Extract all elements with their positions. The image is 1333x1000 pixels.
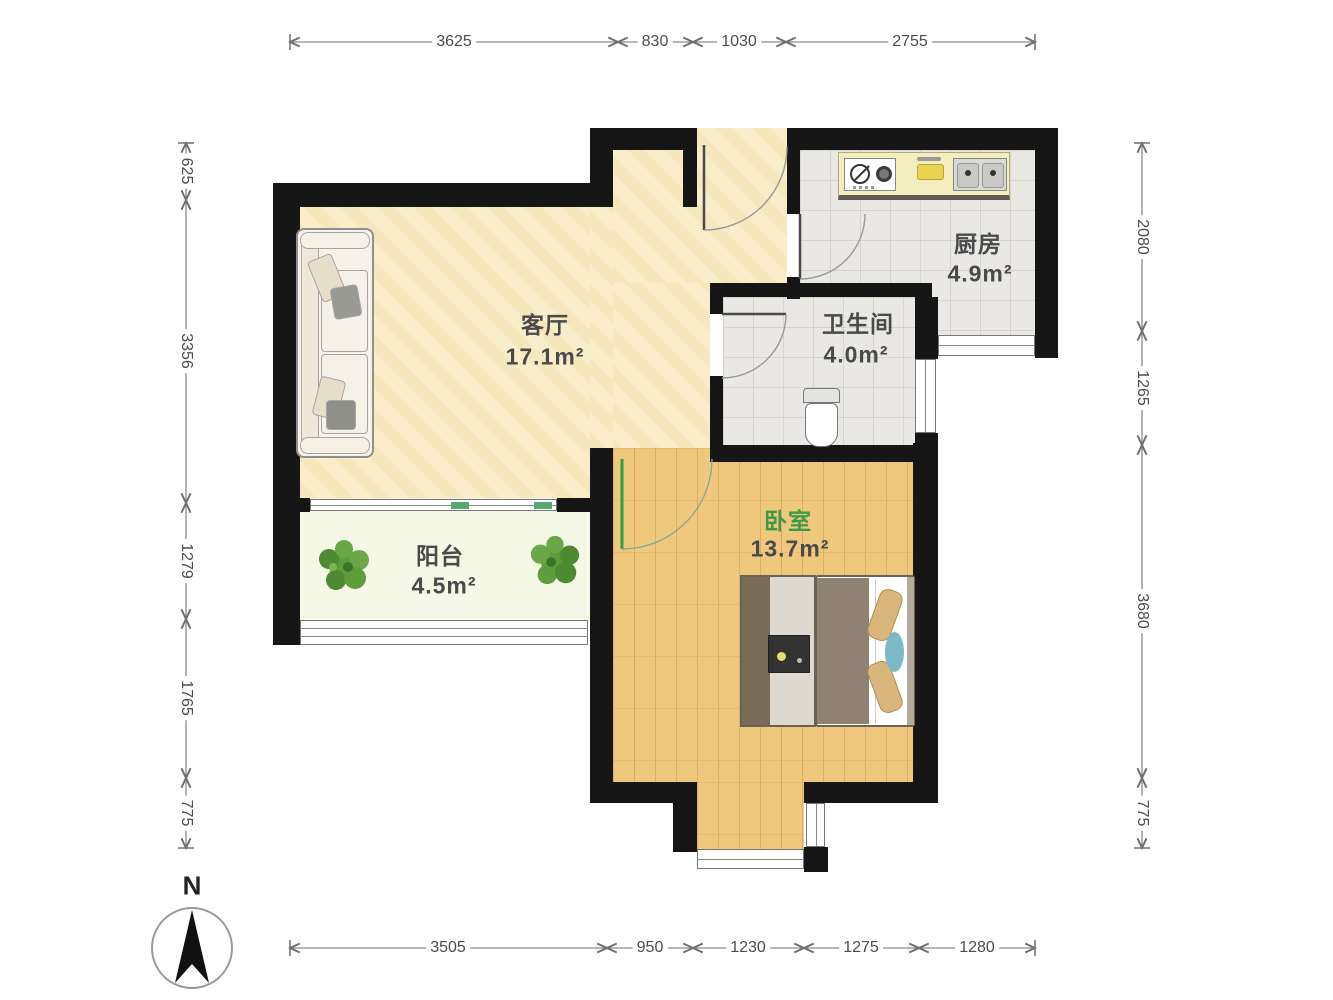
- kitchen-label: 厨房: [954, 225, 1002, 259]
- bed-duvet: [817, 578, 869, 724]
- floor-plan: 3625 830 1030 2755 625 3356 1279 1765 77…: [0, 0, 1333, 1000]
- living-room-label: 客厅: [521, 306, 569, 340]
- bathroom-area: 4.0m²: [823, 342, 888, 369]
- bed-headboard: [907, 577, 914, 725]
- stove-burner: [876, 166, 892, 182]
- cutting-board: [917, 164, 944, 180]
- bedroom-area: 13.7m²: [751, 536, 830, 563]
- balcony-sliding-door: [310, 499, 557, 511]
- wall: [804, 847, 828, 872]
- balcony-area: 4.5m²: [411, 573, 476, 600]
- dim-bottom-1: 3505: [426, 939, 470, 957]
- toilet: [803, 388, 840, 448]
- dim-left-4: 1765: [177, 676, 195, 720]
- dim-left-2: 3356: [177, 329, 195, 373]
- bay-window-right: [806, 803, 825, 847]
- corridor-floor: [613, 283, 710, 455]
- sink-faucet: [990, 170, 996, 176]
- wall: [710, 283, 723, 314]
- bed-cushion-blue: [885, 632, 904, 672]
- dim-top-3: 1030: [717, 33, 761, 51]
- dim-right-1: 2080: [1133, 215, 1151, 259]
- wall: [787, 128, 1058, 150]
- tv-indicator: [777, 652, 786, 661]
- compass-rose: [150, 868, 234, 1000]
- sofa-pillow: [326, 400, 356, 430]
- kitchen-area: 4.9m²: [947, 261, 1012, 288]
- balcony-plant: [527, 533, 583, 589]
- dim-bottom-2: 950: [633, 939, 668, 957]
- sofa: [296, 228, 374, 458]
- sink-faucet: [965, 170, 971, 176]
- bay-window-floor: [697, 782, 804, 849]
- sofa-armrest: [300, 232, 370, 249]
- sofa-pillow: [329, 284, 362, 320]
- tv-indicator: [797, 658, 802, 663]
- compass: N: [150, 868, 234, 1000]
- balcony-label: 阳台: [416, 537, 464, 571]
- bedroom-label: 卧室: [764, 502, 812, 536]
- wall: [915, 297, 938, 359]
- balcony-window: [300, 620, 588, 645]
- bathroom-window: [915, 359, 936, 433]
- wall: [557, 498, 603, 512]
- dim-left-3: 1279: [177, 539, 195, 583]
- living-room-floor-strip: [590, 207, 613, 448]
- dim-bottom-5: 1280: [955, 939, 999, 957]
- dim-left-1: 625: [177, 154, 195, 189]
- toilet-tank: [803, 388, 840, 403]
- dim-right-2: 1265: [1133, 366, 1151, 410]
- wall: [1035, 128, 1058, 358]
- sofa-armrest: [300, 437, 370, 454]
- tv-unit: [768, 635, 810, 673]
- kitchen-window: [938, 335, 1035, 356]
- wall: [787, 150, 800, 214]
- bed-sheet-fold: [875, 579, 876, 723]
- dim-right-3: 3680: [1133, 589, 1151, 633]
- bed: [815, 575, 915, 727]
- bay-window-bottom: [697, 849, 804, 869]
- dim-left-5: 775: [177, 796, 195, 831]
- dim-top-4: 2755: [888, 33, 932, 51]
- dim-top-2: 830: [638, 33, 673, 51]
- toilet-bowl: [805, 403, 838, 447]
- living-room-area: 17.1m²: [506, 344, 585, 371]
- wall: [273, 498, 310, 512]
- entry-hall-floor: [613, 128, 787, 283]
- wall: [673, 782, 697, 852]
- cutting-board-handle: [917, 157, 941, 161]
- wall: [804, 782, 938, 803]
- wall: [273, 183, 613, 207]
- dim-right-4: 775: [1133, 796, 1151, 831]
- bathroom-label: 卫生间: [822, 305, 894, 339]
- kitchen-counter: [838, 152, 1010, 200]
- stove: [844, 158, 896, 191]
- dim-bottom-3: 1230: [726, 939, 770, 957]
- wall: [683, 150, 697, 207]
- wardrobe-side: [742, 577, 770, 725]
- balcony-plant: [315, 537, 373, 595]
- north-needle: [175, 910, 209, 983]
- sink: [953, 158, 1007, 191]
- wall: [710, 283, 932, 297]
- dim-top-1: 3625: [432, 33, 476, 51]
- wall: [590, 782, 685, 803]
- wall: [590, 128, 697, 150]
- stove-grill-dots: [853, 186, 877, 189]
- dim-bottom-4: 1275: [839, 939, 883, 957]
- wall: [913, 443, 938, 803]
- wardrobe: [740, 575, 816, 727]
